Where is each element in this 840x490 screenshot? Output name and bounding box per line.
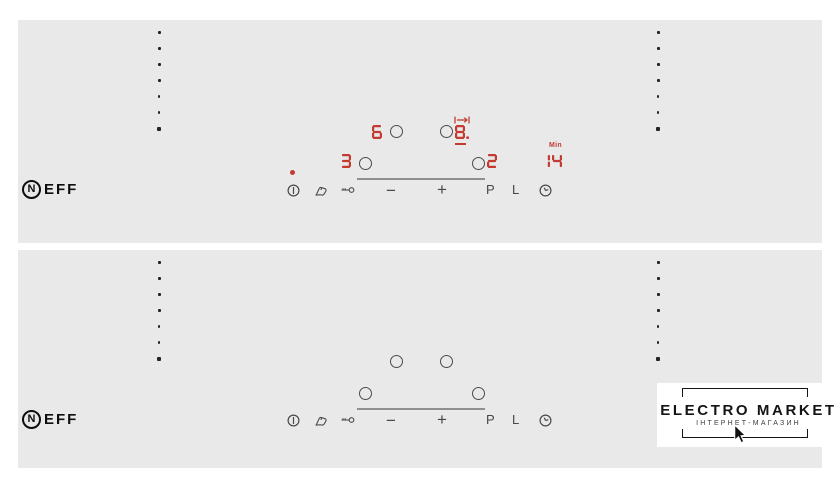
hob-panel-on: N EFF Min − + P L xyxy=(18,20,822,243)
zone-select-front-right[interactable] xyxy=(472,387,485,400)
decor-dot xyxy=(158,31,161,34)
zone-select-rear-right[interactable] xyxy=(440,125,453,138)
decor-dot xyxy=(657,47,660,50)
minus-button[interactable]: − xyxy=(386,412,396,429)
zone-select-rear-right[interactable] xyxy=(440,355,453,368)
move-pan-icon xyxy=(454,116,470,124)
display-rear-left-level xyxy=(372,125,383,139)
decor-dot xyxy=(656,357,660,361)
zone-select-rear-left[interactable] xyxy=(390,355,403,368)
right-dot-column xyxy=(656,250,660,370)
decor-dot xyxy=(657,261,660,264)
right-dot-column xyxy=(656,20,660,140)
decor-dot xyxy=(158,261,161,264)
neff-logo-text: EFF xyxy=(44,411,78,428)
plus-button[interactable]: + xyxy=(437,411,447,428)
decor-dot xyxy=(158,309,161,312)
decor-dot xyxy=(157,127,161,131)
decor-dot xyxy=(158,95,161,98)
timer-min-label: Min xyxy=(549,142,562,149)
decor-dot xyxy=(657,277,660,280)
decor-dot xyxy=(657,325,660,328)
neff-logo-emblem: N xyxy=(22,180,41,199)
decor-dot xyxy=(158,79,161,82)
key-icon[interactable] xyxy=(340,186,355,194)
zone-select-front-right[interactable] xyxy=(472,157,485,170)
neff-logo-emblem: N xyxy=(22,410,41,429)
store-name: ELECTRO MARKET xyxy=(657,402,840,419)
selected-zone-underline xyxy=(455,143,466,145)
power-on-led xyxy=(290,170,295,175)
decor-dot xyxy=(657,341,660,344)
decor-dot xyxy=(158,111,161,114)
zone-select-front-left[interactable] xyxy=(359,387,372,400)
zone-select-rear-left[interactable] xyxy=(390,125,403,138)
decor-dot xyxy=(158,325,161,328)
display-front-right-level xyxy=(487,154,498,168)
decor-dot xyxy=(657,95,660,98)
decor-dot xyxy=(657,309,660,312)
power-icon[interactable] xyxy=(287,414,300,427)
decor-dot xyxy=(158,293,161,296)
watermark-frame-top xyxy=(682,388,808,397)
display-rear-right-level xyxy=(455,125,470,139)
neff-logo: N EFF xyxy=(22,178,78,200)
touch-hand-icon[interactable] xyxy=(313,183,328,196)
decor-dot xyxy=(158,63,161,66)
display-front-left-level xyxy=(341,154,352,168)
keep-warm-button[interactable]: L xyxy=(512,183,519,196)
display-timer-value xyxy=(540,154,563,168)
touch-hand-icon[interactable] xyxy=(313,413,328,426)
power-icon[interactable] xyxy=(287,184,300,197)
zone-select-front-left[interactable] xyxy=(359,157,372,170)
store-subtitle: ІНТЕРНЕТ-МАГАЗИН xyxy=(657,420,840,427)
decor-dot xyxy=(657,31,660,34)
touch-slider[interactable] xyxy=(357,178,485,180)
mouse-cursor-icon xyxy=(733,424,747,444)
decor-dot xyxy=(158,47,161,50)
store-watermark: ELECTRO MARKET ІНТЕРНЕТ-МАГАЗИН xyxy=(657,383,840,447)
decor-dot xyxy=(657,111,660,114)
boost-button[interactable]: P xyxy=(486,413,495,426)
decor-dot xyxy=(656,127,660,131)
left-dot-column xyxy=(157,20,161,140)
left-dot-column xyxy=(157,250,161,370)
decor-dot xyxy=(657,79,660,82)
decor-dot xyxy=(158,277,161,280)
neff-logo-text: EFF xyxy=(44,181,78,198)
clock-icon[interactable] xyxy=(539,184,552,197)
clock-icon[interactable] xyxy=(539,414,552,427)
touch-slider[interactable] xyxy=(357,408,485,410)
key-icon[interactable] xyxy=(340,416,355,424)
decor-dot xyxy=(657,63,660,66)
minus-button[interactable]: − xyxy=(386,182,396,199)
decor-dot xyxy=(158,341,161,344)
decor-dot xyxy=(157,357,161,361)
keep-warm-button[interactable]: L xyxy=(512,413,519,426)
decor-dot xyxy=(657,293,660,296)
neff-logo: N EFF xyxy=(22,408,78,430)
plus-button[interactable]: + xyxy=(437,181,447,198)
boost-button[interactable]: P xyxy=(486,183,495,196)
